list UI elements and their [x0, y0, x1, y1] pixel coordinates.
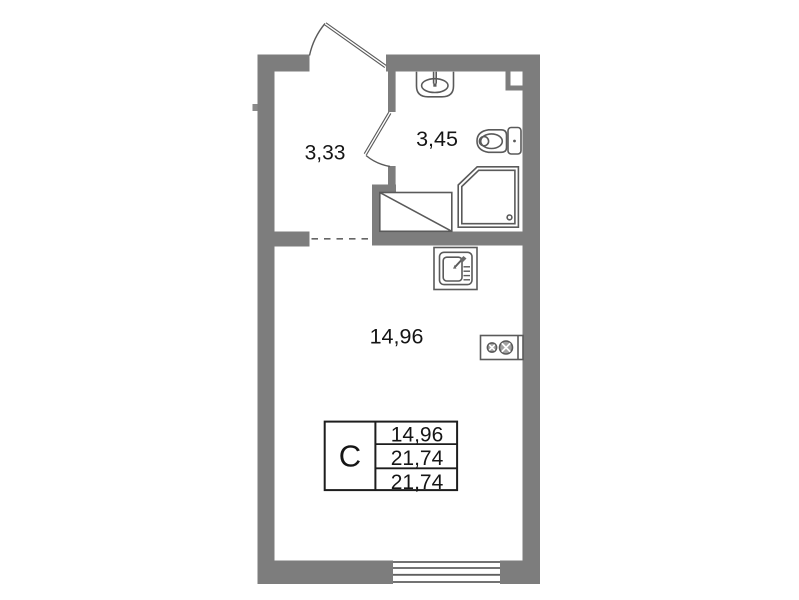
- svg-text:21,74: 21,74: [391, 447, 444, 470]
- svg-text:14,96: 14,96: [391, 423, 444, 446]
- svg-text:21,74: 21,74: [391, 471, 444, 494]
- svg-text:3,33: 3,33: [305, 142, 346, 165]
- svg-text:3,45: 3,45: [416, 127, 458, 151]
- svg-text:14,96: 14,96: [370, 325, 424, 349]
- svg-text:С: С: [339, 439, 361, 474]
